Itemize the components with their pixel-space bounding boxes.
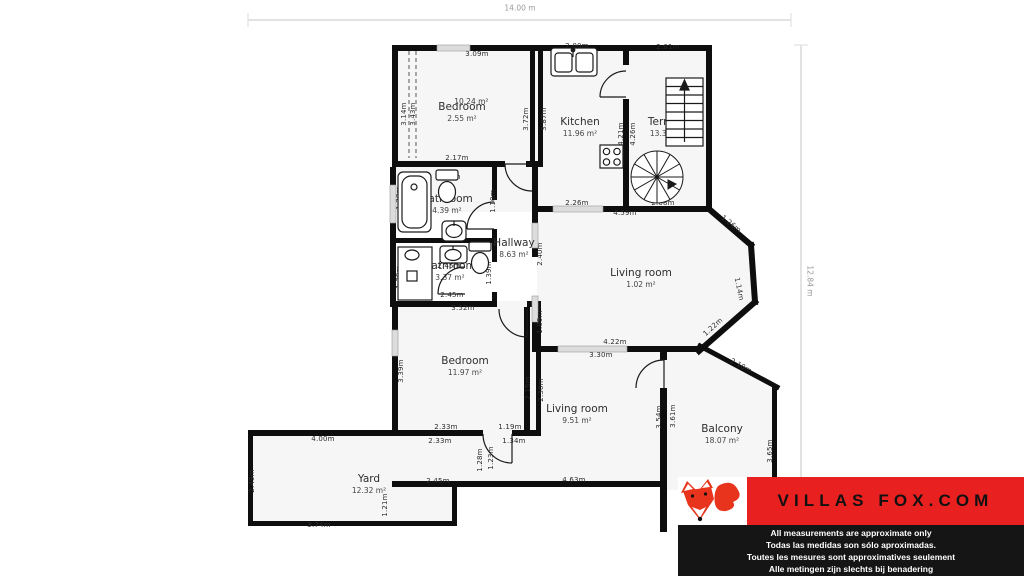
stove-icon [600,145,623,168]
door-bathroom2 [438,267,465,294]
toilet-icon [436,170,458,203]
fox-logo-icon [678,477,747,525]
logo-brand: VILLAS FOX.COM [747,477,1024,525]
door-bedroom1 [505,164,532,191]
kitchen-sink-icon [551,48,597,76]
door-bedroom2 [499,309,527,337]
washbasin-icon [442,221,466,241]
door-balcony [636,360,664,388]
bathtub-icon [398,172,431,232]
stairs-icon [666,78,703,146]
door-kitchen-terrace [600,71,626,97]
washbasin-icon [440,246,467,263]
logo-fox-box [678,477,747,525]
disclaimer-line: All measurements are approximate only [770,527,931,539]
floorplan-canvas: 14.00 m 12.84 m Bedroom10.24 m² 2.55 m² … [0,0,1024,576]
door-yard [483,434,512,463]
toilet-icon [469,242,491,274]
disclaimer-line: Todas las medidas son sólo aproximadas. [766,539,936,551]
disclaimer-line: Toutes les mesures sont approximatives s… [747,551,955,563]
brand-text: VILLAS FOX.COM [778,491,994,511]
logo-disclaimer-bar: All measurements are approximate only To… [678,525,1024,576]
spiral-stairs-icon [631,151,683,203]
door-bathroom1 [467,202,494,229]
disclaimer-line: Alle metingen zijn slechts bij benaderin… [769,563,933,575]
shower-icon [398,247,432,300]
